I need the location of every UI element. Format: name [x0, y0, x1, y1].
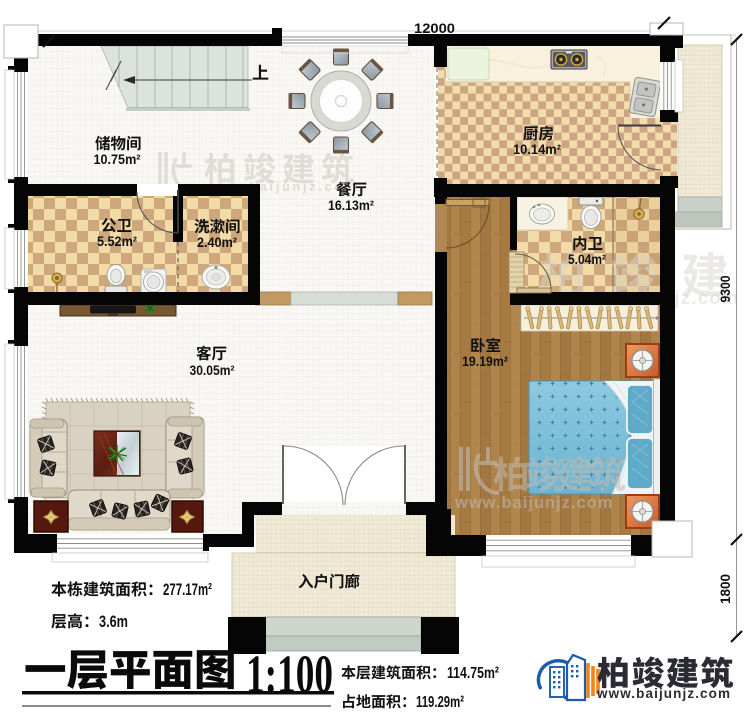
svg-text:114.75m²: 114.75m² — [447, 665, 499, 682]
svg-text:10.75m²: 10.75m² — [94, 151, 141, 167]
svg-text:5.04m²: 5.04m² — [568, 251, 606, 267]
svg-text:2.40m²: 2.40m² — [197, 234, 237, 250]
svg-text:1:100: 1:100 — [246, 644, 333, 704]
svg-text:9300: 9300 — [717, 275, 733, 302]
svg-text:277.17m²: 277.17m² — [163, 580, 212, 599]
svg-text:1800: 1800 — [717, 574, 733, 604]
svg-text:30.05m²: 30.05m² — [190, 362, 235, 378]
svg-text:10.14m²: 10.14m² — [513, 141, 561, 157]
svg-text:16.13m²: 16.13m² — [328, 197, 374, 213]
svg-text:3.6m: 3.6m — [99, 612, 128, 631]
svg-text:19.19m²: 19.19m² — [462, 353, 508, 369]
svg-text:5.52m²: 5.52m² — [97, 233, 137, 249]
svg-text:12000: 12000 — [414, 20, 455, 36]
svg-text:www.baijunjz.com: www.baijunjz.com — [596, 686, 731, 701]
svg-text:119.29m²: 119.29m² — [416, 694, 464, 711]
svg-text:www.baijunjz.com: www.baijunjz.com — [454, 494, 613, 512]
